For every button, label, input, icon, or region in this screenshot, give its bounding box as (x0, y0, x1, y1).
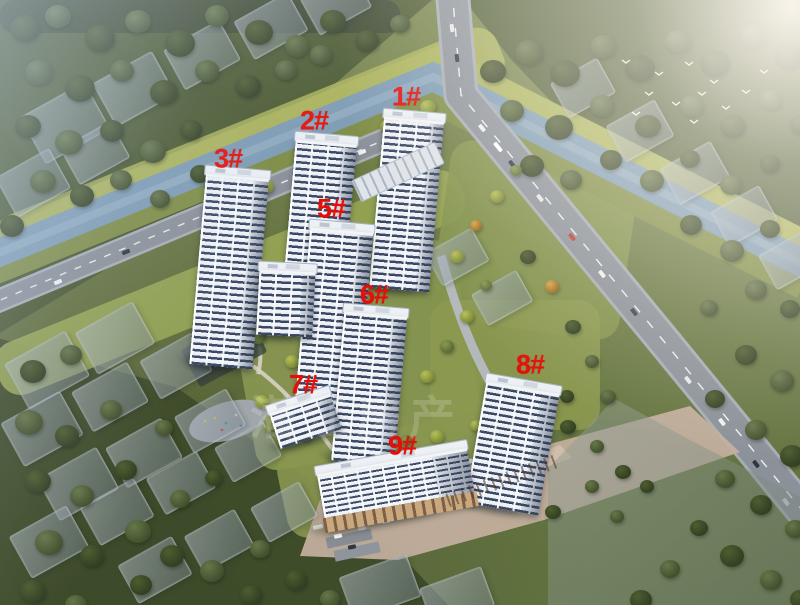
building-label-5: 5# (317, 196, 345, 223)
building-label-3: 3# (214, 146, 242, 173)
bird-icon (698, 92, 706, 95)
bird-icon (742, 90, 750, 93)
bird-icon (672, 102, 680, 105)
bird-icon (622, 60, 630, 63)
building-label-2: 2# (300, 108, 328, 135)
watermark: 潜江房产 (250, 382, 462, 448)
bird-icon (722, 106, 730, 109)
bird-icon (685, 62, 693, 65)
bird-icon (632, 112, 640, 115)
building-label-6: 6# (360, 282, 388, 309)
building-label-8: 8# (516, 352, 544, 379)
bird-icon (710, 80, 718, 83)
aerial-site-rendering: 潜江房产 1#2#3#5#6#7#8#9# (0, 0, 800, 605)
bird-icon (645, 92, 653, 95)
bird-icon (655, 72, 663, 75)
building-label-1: 1# (392, 84, 420, 111)
bird-icon (690, 120, 698, 123)
bird-icon (760, 70, 768, 73)
